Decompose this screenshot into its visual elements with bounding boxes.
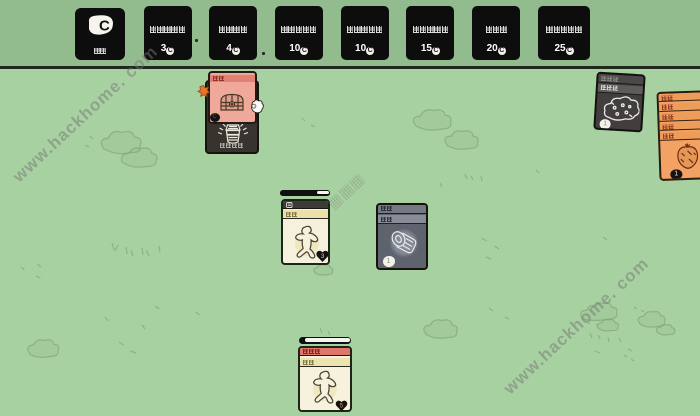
svg-text:3: 3 bbox=[320, 253, 324, 260]
svg-text:C: C bbox=[99, 18, 110, 35]
